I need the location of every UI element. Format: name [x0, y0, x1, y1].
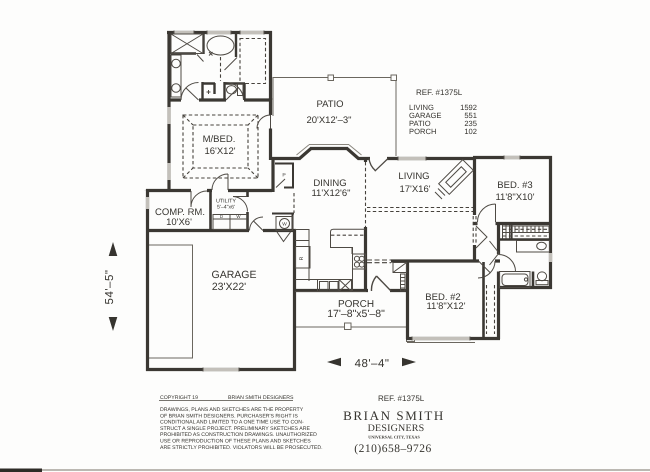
svg-text:DESIGNERS: DESIGNERS	[368, 423, 425, 434]
svg-text:GARAGE: GARAGE	[212, 269, 257, 281]
svg-text:REF. #1375L: REF. #1375L	[416, 88, 463, 97]
svg-text:48'–4": 48'–4"	[355, 358, 390, 370]
svg-text:USE OR REPRODUCTION OF THESE P: USE OR REPRODUCTION OF THESE PLANS AND S…	[160, 439, 311, 445]
svg-text:REF. #1375L: REF. #1375L	[378, 394, 425, 403]
svg-text:STRUCT A SINGLE PROJECT. PREL: STRUCT A SINGLE PROJECT. PRELIMINARY SKE…	[160, 426, 310, 432]
svg-text:BRIAN SMITH: BRIAN SMITH	[343, 408, 445, 423]
svg-text:17'X16': 17'X16'	[399, 184, 430, 195]
svg-text:ARE STRICTLY PROHIBITED. VIOL: ARE STRICTLY PROHIBITED. VIOLATORS WILL …	[160, 445, 323, 451]
svg-text:102: 102	[464, 127, 477, 136]
svg-text:11'X12'6": 11'X12'6"	[311, 188, 350, 199]
svg-text:16'X12': 16'X12'	[204, 146, 235, 157]
svg-text:D: D	[220, 214, 223, 219]
svg-text:UNIVERSAL CITY, TEXAS: UNIVERSAL CITY, TEXAS	[368, 435, 420, 440]
svg-text:PATIO: PATIO	[316, 99, 343, 110]
svg-text:20'X12'–3": 20'X12'–3"	[306, 115, 351, 126]
svg-text:LIVING: LIVING	[398, 171, 429, 182]
svg-text:DRAWINGS, PLANS AND SKETCHES A: DRAWINGS, PLANS AND SKETCHES ARE THE PRO…	[160, 407, 304, 413]
svg-text:23'X22': 23'X22'	[212, 281, 246, 293]
svg-text:(210)658–9726: (210)658–9726	[354, 443, 431, 455]
svg-text:P: P	[282, 173, 286, 179]
svg-text:54'–5": 54'–5"	[104, 270, 116, 305]
svg-text:11'8"X12': 11'8"X12'	[426, 301, 465, 312]
svg-text:5'–4"x6': 5'–4"x6'	[217, 205, 235, 211]
svg-text:BED. #3: BED. #3	[497, 180, 532, 191]
svg-text:R: R	[299, 256, 305, 260]
svg-text:17'–8"x5'–8": 17'–8"x5'–8"	[327, 308, 385, 320]
svg-text:PORCH: PORCH	[409, 127, 436, 136]
svg-text:10'X6': 10'X6'	[166, 217, 192, 228]
svg-text:CONDITIONAL AND LIMITED TO A O: CONDITIONAL AND LIMITED TO A ONE TIME US…	[160, 420, 304, 426]
svg-text:M/BED.: M/BED.	[203, 134, 236, 145]
svg-text:W: W	[282, 222, 287, 228]
svg-text:OF BRIAN SMITH DESIGNERS. PUR: OF BRIAN SMITH DESIGNERS. PURCHASER'S RI…	[160, 413, 298, 419]
svg-text:11'8"X10': 11'8"X10'	[495, 192, 534, 203]
svg-text:PROHIBITED AS CONSTRUCTION DRA: PROHIBITED AS CONSTRUCTION DRAWINGS. UNA…	[160, 432, 317, 438]
